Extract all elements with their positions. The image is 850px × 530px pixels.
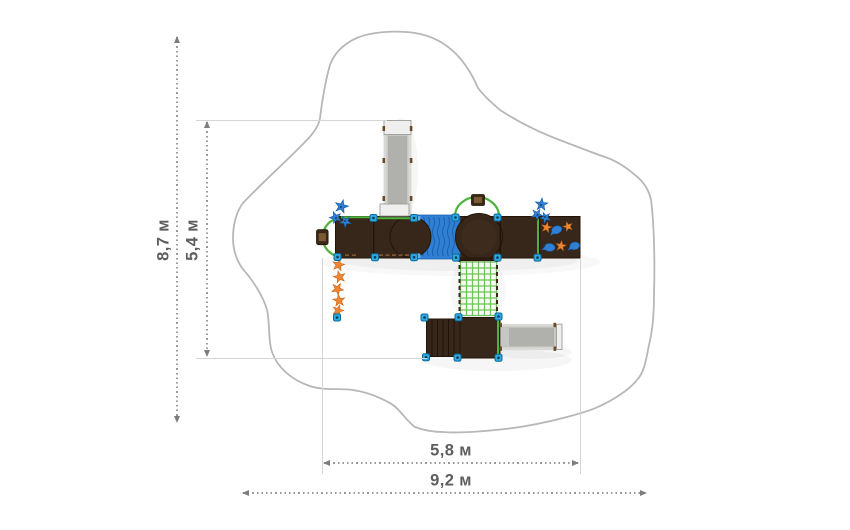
dimension-line-site-height: [176, 37, 178, 422]
climbing-net: [459, 258, 498, 316]
lower-platform: [427, 318, 501, 359]
starfish-icon: [330, 281, 346, 296]
dimension-label-equipment-width: 5,8 м: [430, 442, 472, 461]
arrow-left-icon: [242, 490, 249, 496]
arrow-right-icon: [572, 460, 579, 466]
top-slide: [380, 120, 412, 216]
dimension-line-site-width: [243, 492, 646, 494]
net-attachment-bar: [459, 258, 498, 262]
starfish-icon: [332, 270, 346, 284]
arrow-down-icon: [204, 350, 210, 357]
arrow-down-icon: [174, 416, 180, 423]
arrow-right-icon: [640, 490, 647, 496]
flower-icon: [535, 197, 548, 210]
flower-icon: [334, 198, 350, 213]
extension-line-equipment-left: [322, 258, 323, 474]
playground-plan-canvas: 8,7 м 5,4 м 5,8 м 9,2 м: [0, 0, 850, 530]
dimension-line-equipment-height: [206, 122, 208, 356]
rounded-platform-end: [390, 217, 431, 258]
arrow-up-icon: [204, 121, 210, 128]
arrow-up-icon: [174, 36, 180, 43]
bottom-slide: [499, 323, 562, 351]
lower-square-platform: [460, 318, 500, 359]
extension-line-equipment-right: [580, 258, 581, 474]
dimension-label-site-height: 8,7 м: [155, 219, 174, 261]
dimension-line-equipment-width: [324, 462, 578, 464]
dimension-label-site-width: 9,2 м: [430, 472, 472, 491]
round-tower-inner: [462, 220, 497, 255]
arrow-left-icon: [323, 460, 330, 466]
playground-plan-drawing: [0, 0, 850, 530]
arc-handle: [317, 230, 329, 245]
starfish-icon: [333, 294, 346, 306]
extension-line-equipment-top: [196, 120, 387, 121]
extension-line-equipment-bottom: [196, 358, 427, 359]
dimension-label-equipment-height: 5,4 м: [184, 219, 203, 261]
arch-crossbar: [472, 195, 485, 206]
